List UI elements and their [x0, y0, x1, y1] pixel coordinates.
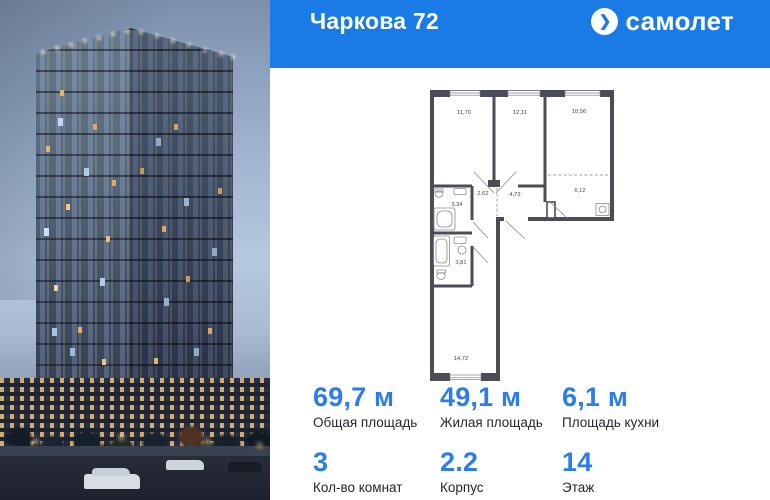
- room-area-label: 3,34: [451, 202, 463, 208]
- car: [228, 462, 262, 472]
- samolet-logo-icon: ❯: [591, 8, 618, 35]
- trees: [0, 0, 26, 22]
- stat-kitchen-area: 6,1 м Площадь кухни: [562, 382, 762, 430]
- kitchen-door-stub: [547, 202, 555, 218]
- wall-junction: [488, 180, 500, 187]
- stat-value: 49,1 м: [440, 382, 562, 412]
- street-lamps: [0, 0, 3, 3]
- stat-label: Кол-во комнат: [313, 480, 440, 495]
- sidewalk: [0, 446, 270, 456]
- stat-value: 14: [562, 447, 762, 477]
- room-area-label: 2,62: [477, 191, 488, 197]
- room-area-label: 14,72: [454, 356, 469, 362]
- room-area-label: 10,56: [572, 109, 587, 115]
- podium-building: [0, 378, 270, 450]
- room-area-label: 12,11: [513, 110, 527, 116]
- samolet-logo-text: самолет: [626, 6, 735, 37]
- stat-label: Жилая площадь: [440, 415, 562, 430]
- stat-value: 69,7 м: [313, 382, 440, 412]
- apartment-stats: 69,7 м Общая площадь 49,1 м Жилая площад…: [313, 382, 762, 495]
- project-title: Чаркова 72: [310, 7, 439, 35]
- room-area-label: 3,81: [455, 260, 466, 266]
- listing-card: Чаркова 72 ❯ самолет: [0, 0, 770, 500]
- room-area-label: 4,73: [509, 192, 520, 198]
- stat-floor: 14 Этаж: [562, 447, 762, 495]
- room-area-label: 11,70: [457, 110, 471, 116]
- building-photo: [0, 0, 270, 500]
- stat-rooms: 3 Кол-во комнат: [313, 447, 440, 495]
- outer-walls: [432, 92, 612, 378]
- car: [84, 474, 140, 489]
- stat-living-area: 49,1 м Жилая площадь: [440, 382, 562, 430]
- stat-label: Корпус: [440, 480, 562, 495]
- stat-value: 3: [313, 447, 440, 477]
- room-area-label: 6,12: [574, 188, 585, 194]
- car: [166, 460, 204, 470]
- stat-total-area: 69,7 м Общая площадь: [313, 382, 440, 430]
- stat-value: 2.2: [440, 447, 562, 477]
- stat-label: Этаж: [562, 480, 762, 495]
- content-panel: Чаркова 72 ❯ самолет: [270, 0, 770, 500]
- roof-lights: [36, 28, 38, 30]
- floor-plan: 11,70 12,11 10,56 2,62 4,73 6,12 3,34 3,…: [430, 90, 614, 382]
- stat-label: Общая площадь: [313, 415, 440, 430]
- stat-label: Площадь кухни: [562, 415, 762, 430]
- samolet-logo[interactable]: ❯ самолет: [591, 6, 735, 37]
- stat-building: 2.2 Корпус: [440, 447, 562, 495]
- stat-value: 6,1 м: [562, 382, 762, 412]
- header-bar: Чаркова 72 ❯ самолет: [270, 0, 770, 68]
